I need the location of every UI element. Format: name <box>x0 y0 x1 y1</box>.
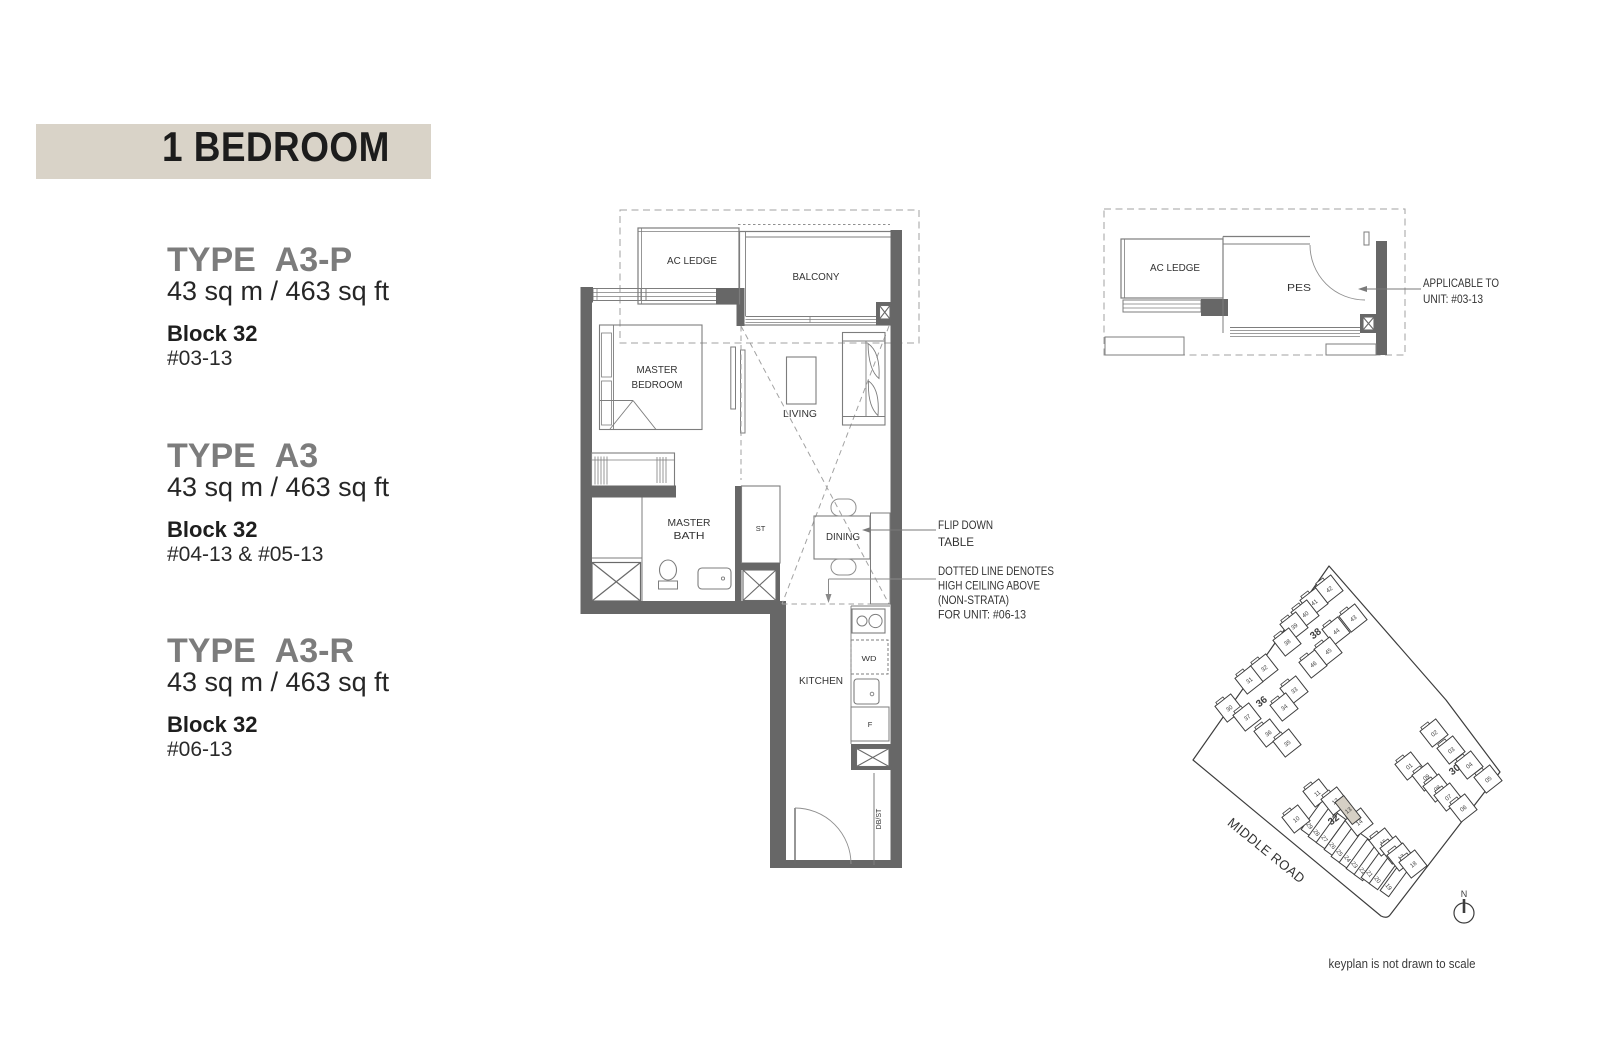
svg-text:BEDROOM: BEDROOM <box>632 379 683 391</box>
svg-text:PES: PES <box>1287 282 1311 294</box>
svg-text:(NON-STRATA): (NON-STRATA) <box>938 595 1009 607</box>
svg-text:DOTTED LINE DENOTES: DOTTED LINE DENOTES <box>938 566 1054 578</box>
svg-text:HIGH CEILING ABOVE: HIGH CEILING ABOVE <box>938 581 1040 593</box>
svg-text:keyplan is not drawn to scale: keyplan is not drawn to scale <box>1329 956 1476 971</box>
svg-text:MASTER: MASTER <box>668 517 711 529</box>
svg-text:BATH: BATH <box>674 530 705 542</box>
svg-text:F: F <box>868 720 873 729</box>
svg-text:36: 36 <box>1254 694 1270 710</box>
svg-text:LIVING: LIVING <box>783 408 817 420</box>
svg-text:38: 38 <box>1308 626 1324 642</box>
svg-text:AC LEDGE: AC LEDGE <box>1150 262 1200 274</box>
svg-text:UNIT: #03-13: UNIT: #03-13 <box>1423 294 1483 306</box>
svg-text:AC LEDGE: AC LEDGE <box>667 255 717 267</box>
svg-text:DB/ST: DB/ST <box>876 808 883 829</box>
svg-text:TABLE: TABLE <box>938 537 974 549</box>
svg-text:KITCHEN: KITCHEN <box>799 675 843 687</box>
svg-text:DINING: DINING <box>826 531 860 543</box>
svg-text:FOR UNIT: #06-13: FOR UNIT: #06-13 <box>938 610 1026 622</box>
svg-text:N: N <box>1461 889 1468 899</box>
svg-text:FLIP DOWN: FLIP DOWN <box>938 520 993 532</box>
svg-text:BALCONY: BALCONY <box>793 271 840 283</box>
svg-text:MASTER: MASTER <box>637 364 678 376</box>
svg-text:ST: ST <box>756 524 766 533</box>
svg-text:WD: WD <box>862 654 878 663</box>
svg-text:APPLICABLE TO: APPLICABLE TO <box>1423 278 1499 290</box>
